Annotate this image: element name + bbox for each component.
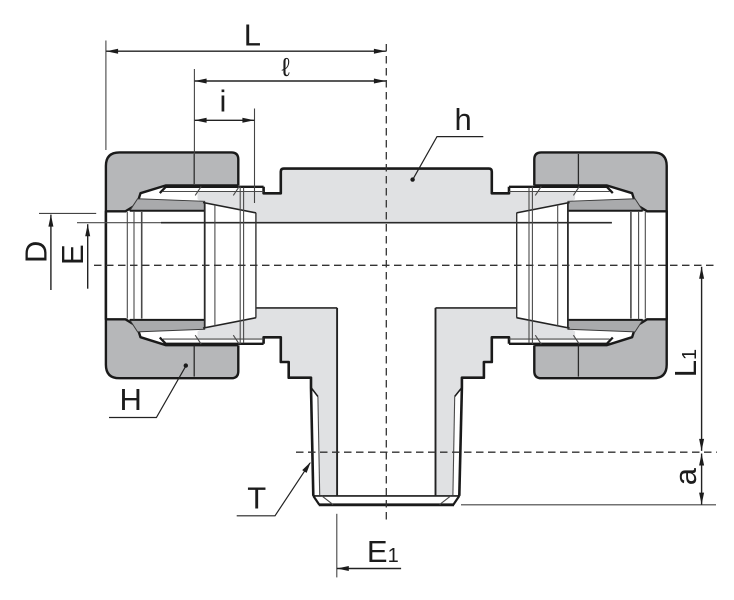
svg-text:H: H (120, 382, 142, 417)
svg-text:T: T (247, 480, 266, 515)
svg-text:E: E (55, 244, 90, 265)
svg-text:D: D (19, 241, 54, 263)
svg-text:ℓ: ℓ (282, 52, 291, 82)
svg-text:a: a (668, 467, 703, 485)
svg-text:i: i (220, 84, 227, 119)
svg-text:L: L (244, 18, 261, 53)
svg-text:h: h (455, 102, 472, 137)
